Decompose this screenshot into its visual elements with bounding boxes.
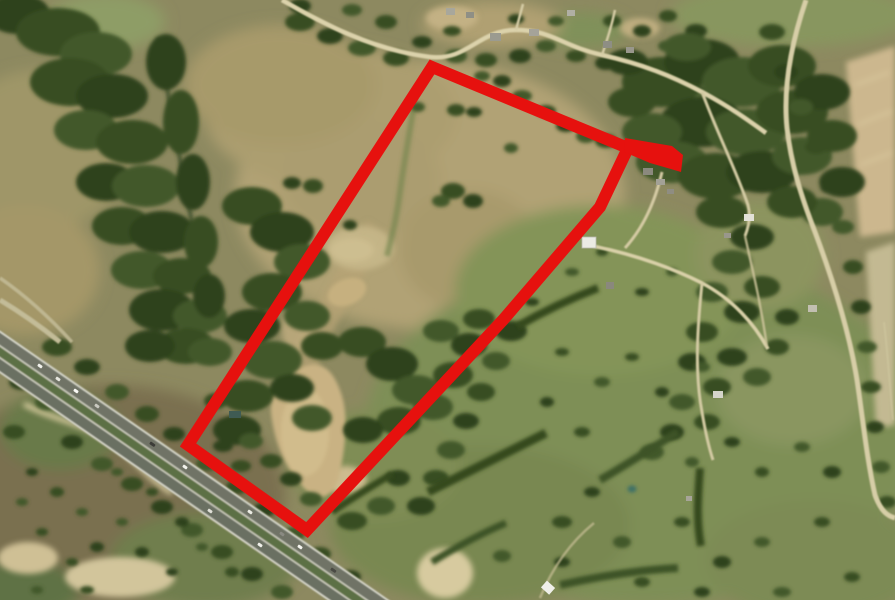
tree-cluster bbox=[555, 348, 569, 356]
tree-cluster bbox=[759, 24, 785, 40]
tree-cluster bbox=[712, 250, 752, 274]
tree-cluster bbox=[447, 104, 465, 116]
tree-cluster bbox=[432, 195, 450, 207]
tree-cluster bbox=[633, 25, 651, 37]
tree-cluster bbox=[536, 40, 556, 52]
tree-cluster bbox=[775, 309, 799, 325]
building bbox=[656, 179, 665, 185]
tree-cluster bbox=[61, 435, 83, 449]
tree-cluster bbox=[857, 341, 877, 353]
tree-cluster bbox=[548, 16, 564, 26]
tree-cluster bbox=[121, 477, 143, 491]
tree-cluster bbox=[843, 260, 863, 274]
tree-cluster bbox=[669, 394, 695, 410]
tree-cluster bbox=[176, 154, 210, 210]
field-patch bbox=[185, 25, 375, 145]
tree-cluster bbox=[196, 543, 208, 551]
tree-cluster bbox=[805, 140, 827, 154]
tree-cluster bbox=[375, 15, 397, 29]
tree-cluster bbox=[694, 587, 710, 597]
tree-cluster bbox=[343, 220, 357, 230]
tree-cluster bbox=[755, 467, 769, 477]
tree-cluster bbox=[80, 586, 94, 594]
tree-cluster bbox=[872, 461, 890, 473]
building bbox=[567, 10, 575, 16]
tree-cluster bbox=[303, 179, 323, 193]
tree-cluster bbox=[844, 572, 860, 582]
building bbox=[643, 168, 653, 175]
tree-cluster bbox=[105, 384, 129, 400]
tree-cluster bbox=[135, 547, 149, 557]
tree-cluster bbox=[508, 14, 524, 24]
tree-cluster bbox=[407, 497, 435, 515]
tree-cluster bbox=[482, 352, 510, 370]
tree-cluster bbox=[26, 468, 38, 476]
tree-cluster bbox=[584, 487, 600, 497]
tree-cluster bbox=[832, 220, 854, 234]
tree-cluster bbox=[146, 488, 158, 496]
building bbox=[446, 8, 455, 15]
tree-cluster bbox=[146, 34, 186, 90]
tree-cluster bbox=[713, 556, 731, 568]
satellite-image bbox=[0, 0, 895, 600]
tree-cluster bbox=[175, 517, 189, 527]
tree-cluster bbox=[112, 165, 180, 207]
tree-cluster bbox=[574, 427, 590, 437]
tree-cluster bbox=[443, 26, 461, 36]
building bbox=[808, 305, 817, 312]
building bbox=[529, 29, 539, 36]
tree-cluster bbox=[50, 487, 64, 497]
tree-cluster bbox=[509, 49, 531, 63]
tree-cluster bbox=[260, 454, 282, 468]
building bbox=[490, 33, 501, 41]
tree-cluster bbox=[301, 332, 343, 360]
tree-cluster bbox=[696, 196, 748, 228]
tree-row bbox=[698, 468, 701, 546]
tree-cluster bbox=[686, 322, 718, 342]
tree-cluster bbox=[466, 107, 482, 117]
tree-cluster bbox=[91, 457, 113, 471]
tree-cluster bbox=[608, 87, 656, 117]
tree-cluster bbox=[66, 558, 78, 566]
building bbox=[466, 12, 474, 18]
tree-cluster bbox=[166, 568, 178, 576]
tree-cluster bbox=[724, 437, 740, 447]
tree-cluster bbox=[594, 377, 610, 387]
tree-cluster bbox=[634, 577, 650, 587]
tree-cluster bbox=[163, 90, 199, 154]
building bbox=[606, 282, 614, 289]
tree-cluster bbox=[271, 585, 293, 599]
building bbox=[713, 391, 723, 398]
tree-cluster bbox=[96, 120, 168, 164]
tree-cluster bbox=[213, 440, 233, 452]
building bbox=[724, 233, 731, 238]
tree-cluster bbox=[685, 457, 699, 467]
tree-cluster bbox=[463, 194, 483, 208]
tree-cluster bbox=[412, 36, 432, 48]
tree-cluster bbox=[367, 497, 395, 515]
tree-cluster bbox=[280, 472, 302, 486]
tree-cluster bbox=[743, 368, 771, 386]
tree-cluster bbox=[423, 320, 459, 342]
building bbox=[626, 47, 634, 53]
tree-cluster bbox=[151, 500, 173, 514]
tree-cluster bbox=[655, 387, 669, 397]
tree-cluster bbox=[744, 276, 780, 298]
aerial-map-view bbox=[0, 0, 895, 600]
tree-cluster bbox=[467, 383, 495, 401]
tree-cluster bbox=[475, 53, 497, 67]
tree-cluster bbox=[225, 567, 239, 577]
building bbox=[667, 189, 674, 194]
tree-cluster bbox=[823, 466, 841, 478]
tree-cluster bbox=[116, 518, 128, 526]
tree-cluster bbox=[674, 517, 690, 527]
sand-patch bbox=[0, 542, 58, 574]
tree-cluster bbox=[552, 516, 572, 528]
tree-cluster bbox=[773, 587, 791, 597]
tree-cluster bbox=[663, 33, 711, 61]
tree-cluster bbox=[694, 414, 720, 430]
tree-cluster bbox=[163, 427, 185, 441]
tree-cluster bbox=[453, 413, 479, 429]
tree-cluster bbox=[31, 586, 43, 594]
tree-cluster bbox=[111, 468, 123, 476]
tree-cluster bbox=[820, 180, 842, 194]
tree-cluster bbox=[184, 216, 218, 268]
building bbox=[744, 214, 754, 221]
tree-cluster bbox=[76, 508, 88, 516]
tree-cluster bbox=[659, 10, 677, 22]
tree-cluster bbox=[125, 330, 175, 362]
tree-cluster bbox=[861, 381, 881, 393]
pond-tiny bbox=[628, 486, 637, 493]
tree-cluster bbox=[493, 550, 511, 562]
tree-cluster bbox=[635, 288, 649, 296]
tree-cluster bbox=[16, 498, 28, 506]
tree-cluster bbox=[300, 492, 322, 506]
tree-cluster bbox=[730, 224, 774, 250]
building bbox=[603, 41, 612, 48]
tree-cluster bbox=[565, 268, 579, 276]
tree-cluster bbox=[3, 425, 25, 439]
tree-cluster bbox=[717, 348, 747, 366]
tree-cluster bbox=[613, 536, 631, 548]
tree-cluster bbox=[36, 528, 48, 536]
tree-cluster bbox=[504, 143, 518, 153]
tree-cluster bbox=[794, 442, 810, 452]
barn bbox=[582, 237, 596, 248]
tree-cluster bbox=[241, 567, 263, 581]
building bbox=[686, 496, 692, 501]
tree-cluster bbox=[540, 397, 554, 407]
tree-cluster bbox=[292, 405, 332, 431]
tree-cluster bbox=[866, 421, 884, 433]
tree-cluster bbox=[754, 537, 770, 547]
shed bbox=[229, 411, 241, 418]
tree-cluster bbox=[135, 406, 159, 422]
tree-cluster bbox=[343, 417, 383, 443]
tree-cluster bbox=[284, 301, 330, 331]
tree-cluster bbox=[211, 545, 233, 559]
tree-cluster bbox=[74, 359, 100, 375]
tree-cluster bbox=[220, 419, 242, 433]
tree-cluster bbox=[342, 4, 362, 16]
tree-cluster bbox=[231, 460, 251, 472]
tree-cluster bbox=[239, 433, 263, 449]
tree-cluster bbox=[337, 512, 367, 530]
tree-cluster bbox=[625, 353, 639, 361]
tree-cluster bbox=[437, 441, 465, 459]
tree-cluster bbox=[193, 274, 225, 318]
tree-cluster bbox=[188, 338, 232, 366]
tree-cluster bbox=[90, 542, 104, 552]
sand-patch bbox=[330, 238, 374, 262]
tree-cluster bbox=[283, 177, 301, 189]
tree-cluster bbox=[270, 374, 314, 402]
tree-cluster bbox=[789, 99, 813, 115]
tree-cluster bbox=[493, 75, 511, 87]
tree-cluster bbox=[851, 300, 871, 314]
tree-cluster bbox=[814, 517, 830, 527]
